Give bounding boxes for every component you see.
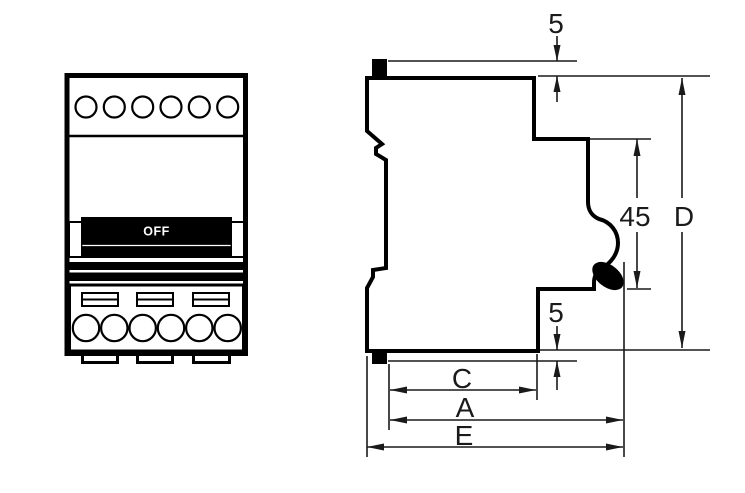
- din-clip-tab-bottom: [372, 350, 387, 364]
- toggle-ear-left: [69, 222, 82, 257]
- dim-label-5-top: 5: [548, 8, 564, 39]
- dim-label-c: C: [452, 363, 472, 394]
- dim-label-d: D: [674, 201, 694, 232]
- drawing-svg: OFF: [0, 0, 745, 493]
- din-clip-tab-top: [372, 59, 387, 79]
- dim-label-e: E: [455, 420, 474, 451]
- front-stripe-lower: [65, 273, 247, 282]
- dim-label-45: 45: [619, 201, 650, 232]
- side-view: [367, 59, 629, 364]
- breaker-dimension-drawing: OFF: [0, 0, 745, 493]
- side-body-outline: [367, 78, 618, 351]
- toggle-off-label: OFF: [143, 225, 170, 239]
- front-view: OFF: [65, 76, 247, 363]
- front-feet: [83, 355, 230, 363]
- front-terminal-slots: [82, 293, 229, 306]
- dim-label-a: A: [456, 392, 475, 423]
- toggle-ear-right: [231, 222, 244, 257]
- front-stripe-upper: [65, 262, 247, 270]
- dim-label-5-bottom: 5: [548, 297, 564, 328]
